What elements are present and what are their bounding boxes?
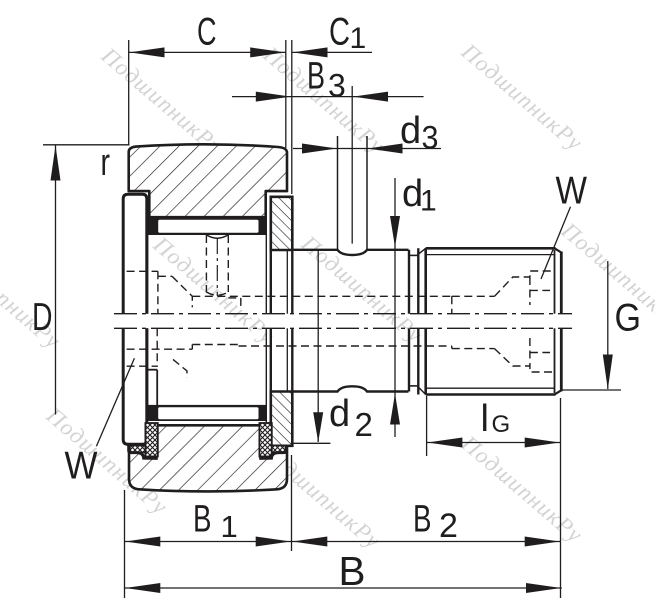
svg-text:l: l	[481, 398, 489, 440]
svg-text:G: G	[492, 411, 511, 438]
svg-text:2: 2	[439, 507, 458, 545]
svg-text:1: 1	[420, 185, 437, 218]
svg-text:1: 1	[221, 509, 238, 544]
svg-text:B: B	[413, 499, 432, 541]
svg-text:W: W	[556, 170, 588, 213]
svg-text:3: 3	[328, 68, 346, 104]
svg-text:C: C	[197, 11, 217, 54]
svg-text:C: C	[329, 11, 350, 54]
svg-text:r: r	[101, 142, 111, 184]
svg-text:W: W	[65, 445, 98, 488]
svg-text:2: 2	[355, 406, 373, 443]
svg-text:d: d	[400, 110, 421, 152]
svg-text:1: 1	[350, 22, 367, 55]
svg-text:B: B	[193, 499, 212, 541]
svg-text:d: d	[329, 393, 350, 435]
svg-text:D: D	[32, 296, 53, 339]
svg-text:3: 3	[422, 120, 439, 156]
svg-text:B: B	[307, 56, 325, 98]
svg-text:B: B	[339, 548, 366, 594]
svg-text:G: G	[615, 297, 642, 340]
